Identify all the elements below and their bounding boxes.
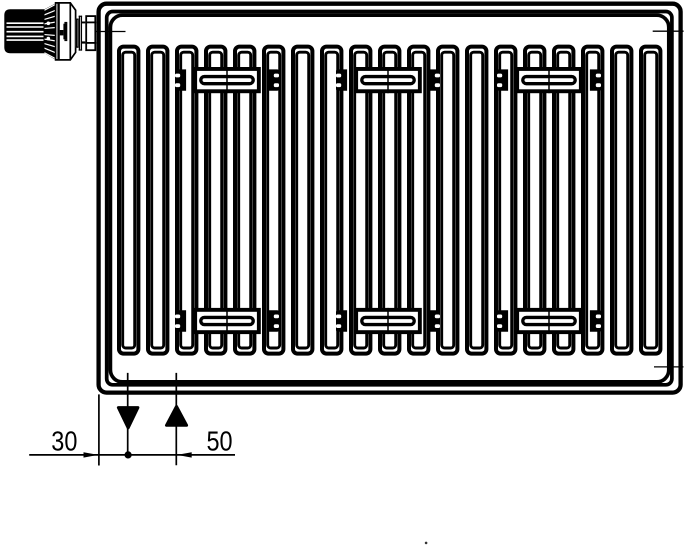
svg-text:50: 50 xyxy=(207,427,233,457)
svg-text:30: 30 xyxy=(51,427,77,457)
